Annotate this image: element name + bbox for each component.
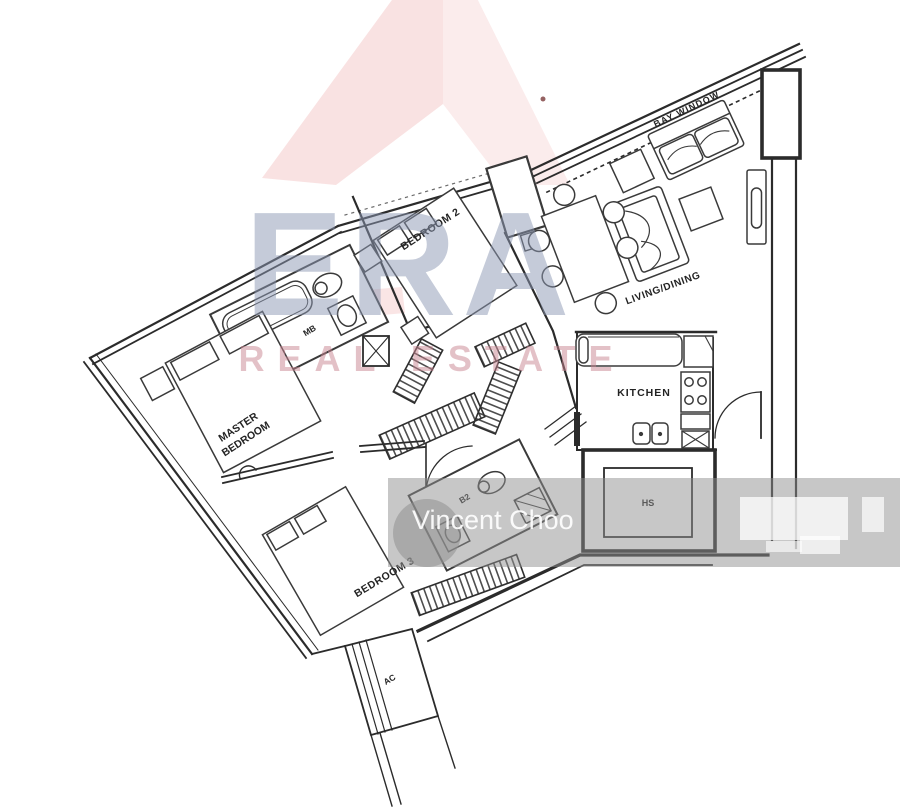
watermark-brand-text: ERA [245, 182, 575, 347]
floorplan-image: BAY WINDOW BEDROOM 2 LIVING/DINING KITCH… [0, 0, 900, 807]
redacted-area [740, 497, 848, 540]
fridge [684, 336, 713, 367]
watermark-brand: ERA REAL ESTATE [238, 182, 625, 379]
tv-console [747, 170, 766, 244]
entrance-door-arc [715, 392, 761, 438]
redacted-area [766, 541, 802, 552]
side-table [610, 149, 654, 192]
agent-name-text: Vincent Choo [412, 505, 574, 535]
room-label-ac: AC [382, 672, 398, 687]
stove [681, 372, 710, 412]
structural-column [762, 70, 800, 158]
sofa-loveseat [647, 100, 744, 181]
redacted-area [862, 497, 884, 532]
ac-ledge-outline [345, 629, 455, 806]
coffee-table [679, 187, 723, 231]
redacted-area [800, 536, 840, 554]
bed-bedroom3 [262, 487, 403, 635]
watermark-agent-band: Vincent Choo [388, 478, 900, 567]
watermark-tagline-text: REAL ESTATE [238, 338, 625, 379]
room-label-kitchen: KITCHEN [617, 387, 671, 399]
floorplan-svg: BAY WINDOW BEDROOM 2 LIVING/DINING KITCH… [0, 0, 900, 807]
